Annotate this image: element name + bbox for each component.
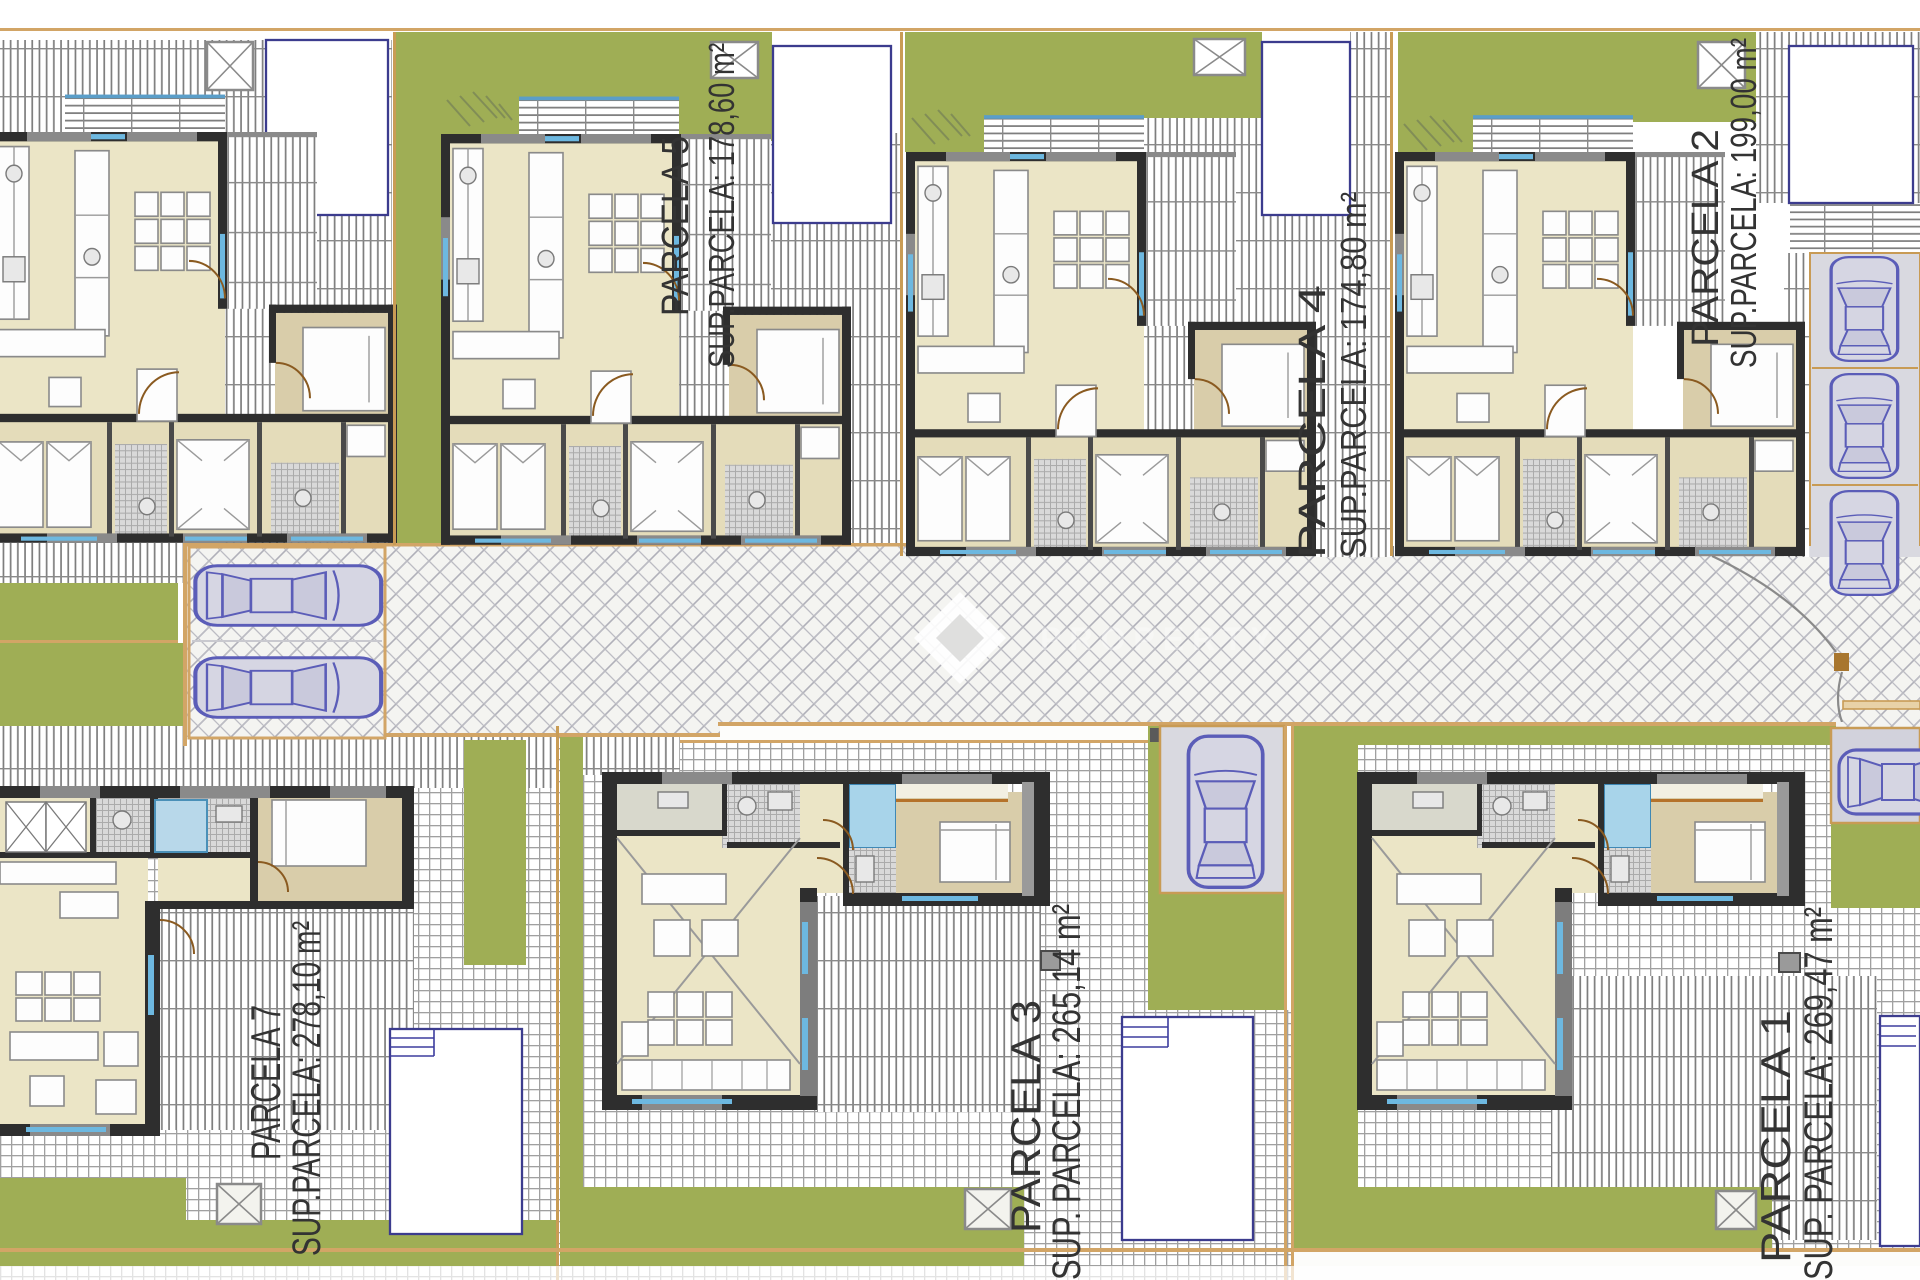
svg-text:PROPERTY: PROPERTY xyxy=(1040,621,1280,657)
svg-text:PARCELA 5: PARCELA 5 xyxy=(655,136,697,316)
svg-text:PARCELA 7: PARCELA 7 xyxy=(242,1005,289,1160)
svg-text:SUP. PARCELA: 269,47 m²: SUP. PARCELA: 269,47 m² xyxy=(1797,907,1841,1280)
svg-text:SUP.PARCELA: 178,60 m²: SUP.PARCELA: 178,60 m² xyxy=(701,43,742,368)
svg-text:SUP.PARCELA: 174,80 m²: SUP.PARCELA: 174,80 m² xyxy=(1333,192,1374,558)
svg-text:SUP.PARCELA: 199,00 m²: SUP.PARCELA: 199,00 m² xyxy=(1723,38,1764,368)
svg-text:PARCELA 3: PARCELA 3 xyxy=(1002,1000,1049,1233)
svg-text:PARCELA 2: PARCELA 2 xyxy=(1685,129,1727,347)
svg-text:PARCELA 4: PARCELA 4 xyxy=(1292,285,1334,558)
svg-text:SUP.PARCELA: 278,10 m²: SUP.PARCELA: 278,10 m² xyxy=(285,921,329,1256)
svg-text:SUP. PARCELA: 265,14 m²: SUP. PARCELA: 265,14 m² xyxy=(1045,904,1089,1280)
svg-text:PARCELA 1: PARCELA 1 xyxy=(1752,1010,1799,1263)
